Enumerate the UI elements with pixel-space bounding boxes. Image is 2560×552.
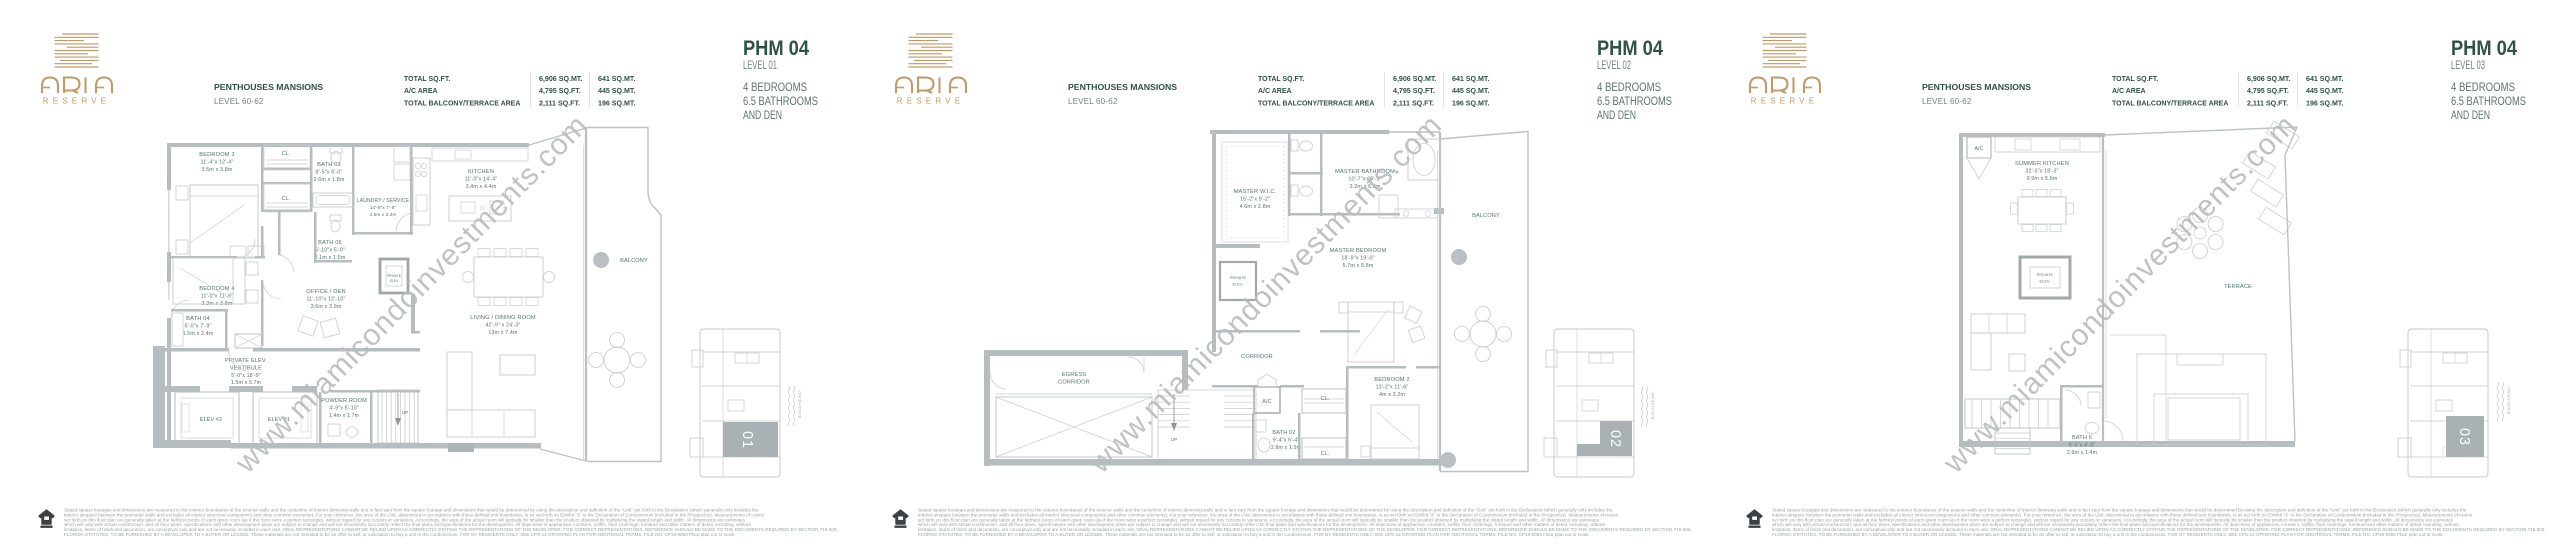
svg-text:11'-10"x 12'-10": 11'-10"x 12'-10" [306,296,345,302]
svg-text:1.4m x 1.7m: 1.4m x 1.7m [329,413,359,419]
svg-text:CL.: CL. [282,196,291,202]
svg-text:42'-9" x 24'-3": 42'-9" x 24'-3" [486,322,521,328]
svg-text:15'-2"x 9'-2": 15'-2"x 9'-2" [1240,196,1270,202]
svg-text:TOTAL BALCONY/TERRACE AREA: TOTAL BALCONY/TERRACE AREA [1258,101,1374,108]
svg-text:PRIVATE: PRIVATE [1230,276,1247,280]
svg-text:13m x 7.4m: 13m x 7.4m [488,330,518,336]
svg-text:LIVING / DINING ROOM: LIVING / DINING ROOM [470,315,536,321]
svg-text:MASTER BEDROOM: MASTER BEDROOM [1330,248,1387,254]
svg-text:A/C AREA: A/C AREA [404,88,438,95]
svg-text:FLORIDA STATUTES, TO BE FURNIS: FLORIDA STATUTES, TO BE FURNISHED BY A D… [918,532,1590,537]
svg-text:2.1m x 1.5m: 2.1m x 1.5m [315,255,346,261]
svg-text:LEVEL 60-62: LEVEL 60-62 [1922,97,1972,106]
svg-text:6,906 SQ.MT.: 6,906 SQ.MT. [1393,75,1436,83]
svg-text:PHM 04: PHM 04 [743,37,809,60]
svg-text:ELEV #2: ELEV #2 [200,417,222,423]
svg-text:AND DEN: AND DEN [1597,108,1636,122]
svg-text:BALCONY: BALCONY [1472,213,1500,219]
svg-text:8'-5"x 6'-0": 8'-5"x 6'-0" [315,169,342,175]
svg-text:TERRACE: TERRACE [2224,284,2252,290]
svg-text:LEVEL 03: LEVEL 03 [2451,60,2485,72]
svg-text:5'-0"x 7'-9": 5'-0"x 7'-9" [184,323,211,329]
svg-text:9'-4"x 6'-4": 9'-4"x 6'-4" [1273,437,1300,443]
svg-text:1.5m x 5.7m: 1.5m x 5.7m [231,380,261,386]
svg-text:6.5 BATHROOMS: 6.5 BATHROOMS [743,94,818,108]
svg-text:BISCAYNE BAY: BISCAYNE BAY [798,390,802,418]
svg-text:PRIVATE: PRIVATE [387,274,401,278]
svg-text:TOTAL SQ.FT.: TOTAL SQ.FT. [404,76,450,83]
svg-text:4'-9"x 5'-10": 4'-9"x 5'-10" [329,405,359,411]
svg-text:445 SQ.MT.: 445 SQ.MT. [1452,87,1489,95]
svg-text:02: 02 [1607,430,1623,448]
svg-text:CL.: CL. [282,151,291,157]
svg-text:9.9m x 5.6m: 9.9m x 5.6m [2027,176,2058,182]
svg-text:BATH 05: BATH 05 [318,240,342,246]
svg-text:CL.: CL. [1321,396,1330,402]
svg-text:4 BEDROOMS: 4 BEDROOMS [2451,80,2515,94]
svg-text:MASTER W.I.C.: MASTER W.I.C. [1234,189,1277,195]
svg-text:BATH 04: BATH 04 [186,316,210,322]
svg-text:6,906 SQ.MT.: 6,906 SQ.MT. [2247,75,2290,83]
svg-text:LEVEL 60-62: LEVEL 60-62 [1068,97,1118,106]
svg-text:PENTHOUSES MANSIONS: PENTHOUSES MANSIONS [1068,82,1177,92]
svg-text:A/C: A/C [1974,146,1983,152]
svg-text:ELEV.: ELEV. [2040,280,2051,284]
svg-text:PHM 04: PHM 04 [2451,37,2517,60]
svg-text:2,111 SQ.FT.: 2,111 SQ.FT. [2247,100,2288,108]
svg-text:LEVEL 60-62: LEVEL 60-62 [214,97,264,106]
svg-text:2.6m x 1.8m: 2.6m x 1.8m [314,177,345,183]
svg-text:641 SQ.MT.: 641 SQ.MT. [598,75,635,83]
svg-text:PENTHOUSES MANSIONS: PENTHOUSES MANSIONS [214,82,323,92]
svg-text:OFFICE / DEN: OFFICE / DEN [306,289,345,295]
svg-text:A/C: A/C [1262,399,1271,405]
svg-text:CORRIDOR: CORRIDOR [1241,354,1273,360]
svg-text:01: 01 [739,431,755,449]
svg-text:6'-10"x 5'-0": 6'-10"x 5'-0" [315,247,345,253]
svg-text:9'-5"x 4'-8": 9'-5"x 4'-8" [2069,442,2096,448]
svg-text:4.5m x 2.4m: 4.5m x 2.4m [370,212,397,217]
svg-text:PHM 04: PHM 04 [1597,37,1663,60]
svg-text:LEVEL 01: LEVEL 01 [743,60,777,72]
svg-text:BISCAYNE BAY: BISCAYNE BAY [1651,391,1655,419]
svg-text:RESERVE: RESERVE [43,97,111,106]
svg-text:445 SQ.MT.: 445 SQ.MT. [598,87,635,95]
svg-text:BEDROOM 2: BEDROOM 2 [1374,377,1409,383]
svg-text:5'-0"x 18'-9": 5'-0"x 18'-9" [231,373,261,379]
svg-text:445 SQ.MT.: 445 SQ.MT. [2306,87,2343,95]
svg-text:196 SQ.MT.: 196 SQ.MT. [598,100,635,108]
svg-text:CORRIDOR: CORRIDOR [1058,379,1090,385]
svg-text:11'-0"x 11'-6": 11'-0"x 11'-6" [201,293,233,299]
svg-text:LEVEL 02: LEVEL 02 [1597,60,1631,72]
svg-text:FLORIDA STATUTES, TO BE FURNIS: FLORIDA STATUTES, TO BE FURNISHED BY A D… [1772,532,2444,537]
svg-text:BATH 6: BATH 6 [2072,435,2092,441]
svg-text:4m x 3.2m: 4m x 3.2m [1379,392,1406,398]
svg-text:1.5m x 2.4m: 1.5m x 2.4m [183,331,214,337]
svg-text:TOTAL BALCONY/TERRACE AREA: TOTAL BALCONY/TERRACE AREA [2112,101,2228,108]
svg-text:196 SQ.MT.: 196 SQ.MT. [1452,100,1489,108]
svg-text:BALCONY: BALCONY [620,258,648,264]
svg-text:A/C AREA: A/C AREA [1258,88,1292,95]
svg-text:2,111 SQ.FT.: 2,111 SQ.FT. [1393,100,1434,108]
svg-text:TOTAL SQ.FT.: TOTAL SQ.FT. [1258,76,1304,83]
svg-text:TOTAL BALCONY/TERRACE AREA: TOTAL BALCONY/TERRACE AREA [404,101,520,108]
svg-text:4 BEDROOMS: 4 BEDROOMS [743,80,807,94]
svg-text:AND DEN: AND DEN [2451,108,2490,122]
svg-text:ELEV: ELEV [390,279,399,283]
svg-text:6.5 BATHROOMS: 6.5 BATHROOMS [1597,94,1672,108]
svg-text:UP: UP [402,410,409,415]
svg-text:LAUNDRY / SERVICE: LAUNDRY / SERVICE [357,198,410,204]
svg-text:4 BEDROOMS: 4 BEDROOMS [1597,80,1661,94]
svg-text:BEDROOM 4: BEDROOM 4 [199,286,234,292]
svg-text:03: 03 [2456,428,2472,446]
svg-text:www.miamicondoinvestments.com: www.miamicondoinvestments.com [1083,109,1449,481]
svg-text:6.5 BATHROOMS: 6.5 BATHROOMS [2451,94,2526,108]
svg-text:4,795 SQ.FT.: 4,795 SQ.FT. [539,87,581,95]
svg-text:RESERVE: RESERVE [1751,97,1819,106]
svg-text:4,795 SQ.FT.: 4,795 SQ.FT. [2247,87,2289,95]
svg-text:4.6m x 2.8m: 4.6m x 2.8m [1240,204,1271,210]
svg-text:2,111 SQ.FT.: 2,111 SQ.FT. [539,100,580,108]
svg-text:PRIVATE: PRIVATE [2037,273,2054,277]
svg-text:BEDROOM 3: BEDROOM 3 [199,152,234,158]
svg-text:TOTAL SQ.FT.: TOTAL SQ.FT. [2112,76,2158,83]
svg-text:PENTHOUSES MANSIONS: PENTHOUSES MANSIONS [1922,82,2031,92]
svg-text:4,795 SQ.FT.: 4,795 SQ.FT. [1393,87,1435,95]
svg-text:UP: UP [1171,437,1178,442]
svg-text:11'-0"x 14'-4": 11'-0"x 14'-4" [465,176,498,182]
svg-text:BATH 02: BATH 02 [1272,430,1295,436]
svg-text:5.7m x 5.8m: 5.7m x 5.8m [1343,263,1374,269]
svg-text:3.5m x 3.8m: 3.5m x 3.8m [202,167,233,173]
svg-text:32'-5"x 18'-3": 32'-5"x 18'-3" [2025,168,2058,174]
svg-text:BATH 03: BATH 03 [317,162,341,168]
svg-text:FLORIDA STATUTES, TO BE FURNIS: FLORIDA STATUTES, TO BE FURNISHED BY A D… [64,532,736,537]
svg-text:AND DEN: AND DEN [743,108,782,122]
svg-text:11'-4"x 12'-4": 11'-4"x 12'-4" [201,159,234,165]
svg-text:EGRESS: EGRESS [1062,372,1086,378]
svg-text:CL.: CL. [1321,451,1330,457]
svg-text:BISCAYNE BAY: BISCAYNE BAY [2507,386,2511,414]
svg-text:18'-9"x 19'-0": 18'-9"x 19'-0" [1341,255,1374,261]
svg-text:3.6m x 3.9m: 3.6m x 3.9m [311,304,342,310]
svg-text:6,906 SQ.MT.: 6,906 SQ.MT. [539,75,582,83]
svg-text:A/C AREA: A/C AREA [2112,88,2146,95]
svg-text:13'-2"x 11'-6": 13'-2"x 11'-6" [1376,384,1409,390]
svg-text:KITCHEN: KITCHEN [468,169,494,175]
svg-text:2.9m x 1.4m: 2.9m x 1.4m [2067,450,2097,456]
svg-text:641 SQ.MT.: 641 SQ.MT. [1452,75,1489,83]
svg-text:641 SQ.MT.: 641 SQ.MT. [2306,75,2343,83]
svg-text:14'-9"x 7'-9": 14'-9"x 7'-9" [370,205,397,210]
svg-text:196 SQ.MT.: 196 SQ.MT. [2306,100,2343,108]
svg-text:ELEV.: ELEV. [1233,283,1244,287]
svg-text:SUMMER KITCHEN: SUMMER KITCHEN [2015,161,2069,167]
svg-text:2.8m x 1.9m: 2.8m x 1.9m [1271,445,1301,451]
svg-text:RESERVE: RESERVE [897,97,965,106]
